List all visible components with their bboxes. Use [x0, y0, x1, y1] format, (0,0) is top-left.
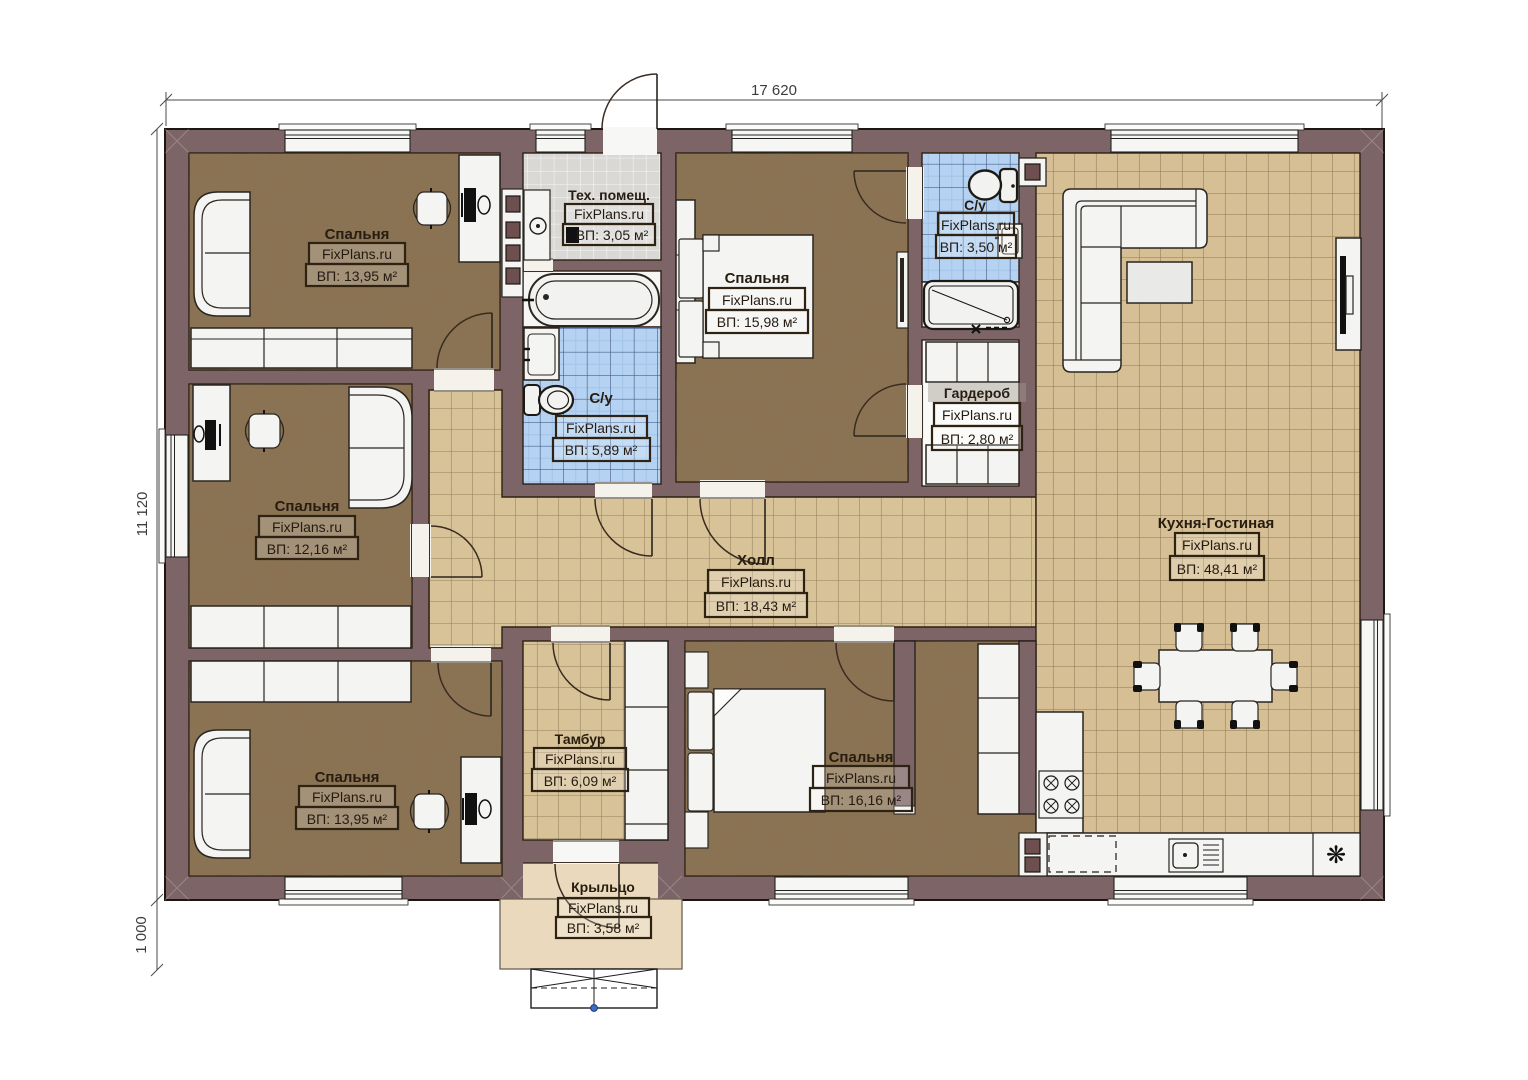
svg-text:Спальня: Спальня — [275, 498, 340, 515]
svg-text:ВП: 3,58 м²: ВП: 3,58 м² — [567, 920, 640, 936]
svg-text:ВП: 16,16 м²: ВП: 16,16 м² — [821, 792, 902, 808]
svg-text:FixPlans.ru: FixPlans.ru — [566, 420, 636, 436]
svg-text:FixPlans.ru: FixPlans.ru — [272, 519, 342, 535]
svg-text:11 120: 11 120 — [134, 492, 151, 537]
svg-text:FixPlans.ru: FixPlans.ru — [826, 770, 896, 786]
svg-text:ВП: 2,80 м²: ВП: 2,80 м² — [941, 431, 1014, 447]
svg-text:FixPlans.ru: FixPlans.ru — [721, 574, 791, 590]
svg-text:ВП: 13,95 м²: ВП: 13,95 м² — [317, 268, 398, 284]
svg-text:ВП: 13,95 м²: ВП: 13,95 м² — [307, 811, 388, 827]
svg-text:FixPlans.ru: FixPlans.ru — [312, 789, 382, 805]
svg-text:ВП: 3,50 м²: ВП: 3,50 м² — [940, 239, 1013, 255]
svg-text:Тамбур: Тамбур — [555, 731, 606, 747]
svg-text:FixPlans.ru: FixPlans.ru — [545, 751, 615, 767]
svg-text:ВП: 3,05 м²: ВП: 3,05 м² — [576, 227, 649, 243]
svg-text:Тех. помещ.: Тех. помещ. — [568, 187, 650, 203]
svg-text:FixPlans.ru: FixPlans.ru — [1182, 537, 1252, 553]
svg-text:Спальня: Спальня — [725, 270, 790, 287]
svg-text:17 620: 17 620 — [751, 82, 797, 99]
svg-text:FixPlans.ru: FixPlans.ru — [941, 217, 1011, 233]
svg-text:FixPlans.ru: FixPlans.ru — [568, 900, 638, 916]
svg-text:ВП: 18,43 м²: ВП: 18,43 м² — [716, 598, 797, 614]
svg-text:Кухня-Гостиная: Кухня-Гостиная — [1158, 515, 1275, 532]
svg-text:Спальня: Спальня — [829, 749, 894, 766]
svg-text:ВП: 5,89 м²: ВП: 5,89 м² — [565, 442, 638, 458]
svg-text:FixPlans.ru: FixPlans.ru — [942, 407, 1012, 423]
svg-text:С/у: С/у — [964, 197, 986, 213]
svg-text:Спальня: Спальня — [325, 226, 390, 243]
svg-text:ВП: 48,41 м²: ВП: 48,41 м² — [1177, 561, 1258, 577]
svg-text:FixPlans.ru: FixPlans.ru — [322, 246, 392, 262]
svg-text:FixPlans.ru: FixPlans.ru — [722, 292, 792, 308]
svg-text:ВП: 15,98 м²: ВП: 15,98 м² — [717, 314, 798, 330]
svg-text:Холл: Холл — [737, 552, 775, 569]
svg-text:ВП: 6,09 м²: ВП: 6,09 м² — [544, 773, 617, 789]
svg-text:Гардероб: Гардероб — [944, 385, 1011, 401]
svg-text:Спальня: Спальня — [315, 769, 380, 786]
svg-text:Крыльцо: Крыльцо — [571, 879, 635, 895]
svg-text:1 000: 1 000 — [133, 916, 150, 954]
svg-text:С/у: С/у — [589, 390, 613, 407]
svg-text:ВП: 12,16 м²: ВП: 12,16 м² — [267, 541, 348, 557]
svg-text:❋: ❋ — [1326, 842, 1346, 869]
svg-text:FixPlans.ru: FixPlans.ru — [574, 206, 644, 222]
